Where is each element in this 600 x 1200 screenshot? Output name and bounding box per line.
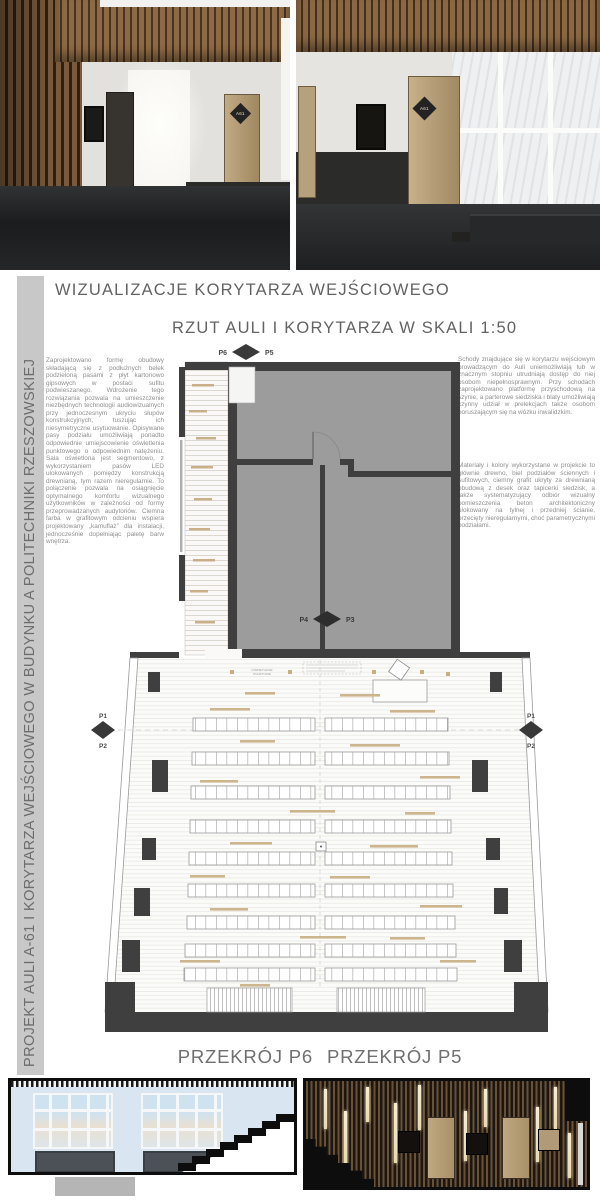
led-strip — [394, 1103, 397, 1163]
section-marker-p6-p5: P6 P5 — [218, 344, 273, 360]
marker-p2-label: P2 — [99, 743, 107, 750]
foundation-block — [55, 1177, 135, 1196]
section-headings: PRZEKRÓJ P6 PRZEKRÓJ P5 — [150, 1046, 490, 1068]
section-p5-body — [303, 1078, 590, 1190]
wardrobe — [229, 367, 255, 403]
radiator-panel — [35, 1151, 115, 1173]
heading-visualizations: WIZUALIZACJE KORYTARZA WEJŚCIOWEGO — [55, 281, 450, 300]
window-sliver — [281, 18, 290, 180]
door-number-label: A61 — [420, 106, 429, 111]
ceiling-white-band — [100, 0, 290, 7]
render-corridor-view-1: A61 — [0, 0, 290, 270]
far-door — [298, 86, 316, 198]
entrance-opening — [205, 649, 242, 659]
picture-frame — [84, 106, 104, 142]
led-strip — [418, 1085, 421, 1130]
framed-picture — [538, 1129, 560, 1151]
framed-picture — [466, 1133, 488, 1155]
render-corridor-view-2: A61 — [296, 0, 600, 270]
section-p6-body — [8, 1078, 297, 1175]
section-window — [33, 1093, 113, 1149]
lighting-annotation: OŚWIETLENIE PUNKTOWE — [251, 667, 272, 676]
front-platform-left — [207, 988, 292, 1012]
upper-corridor — [228, 362, 460, 658]
marker-p2-label: P2 — [527, 743, 535, 750]
section-marker-p1-p2-left: P1 P2 — [91, 713, 115, 750]
led-strip — [484, 1089, 487, 1127]
entrance-stairs — [179, 362, 228, 655]
framed-picture — [398, 1131, 420, 1153]
lectern — [316, 842, 326, 851]
vertical-title-bar: PROJEKT AULI A-61 I KORYTARZA WEJŚCIOWEG… — [17, 276, 44, 1075]
marker-p1-label: P1 — [99, 713, 107, 720]
dark-carpet-floor — [0, 186, 290, 270]
led-strip — [554, 1087, 557, 1129]
ceiling-dotted-band — [11, 1081, 294, 1087]
led-strip — [366, 1087, 369, 1122]
heading-section-p5: PRZEKRÓJ P5 — [327, 1046, 462, 1068]
heading-section-p6: PRZEKRÓJ P6 — [178, 1046, 313, 1068]
led-strip — [324, 1089, 327, 1129]
dark-door — [106, 92, 134, 190]
section-drawing-p5 — [303, 1078, 590, 1190]
floor-plan-drawing: P6 P5 P4 P3 — [90, 340, 560, 1045]
wall-light-strip — [578, 1123, 583, 1185]
aula-front-wall — [105, 1012, 548, 1032]
wall-notch — [565, 1081, 587, 1121]
section-door — [427, 1117, 455, 1179]
door-number-label: A61 — [236, 111, 245, 116]
picture-frame — [356, 104, 386, 150]
radiator — [470, 214, 600, 242]
project-title-vertical: PROJEKT AULI A-61 I KORYTARZA WEJŚCIOWEG… — [17, 276, 44, 1067]
presenter-desk — [373, 680, 427, 702]
marker-p6-label: P6 — [218, 350, 227, 357]
door-a61 — [408, 76, 460, 206]
section-drawing-p6 — [8, 1078, 297, 1196]
svg-text:PUNKTOWE: PUNKTOWE — [253, 672, 271, 676]
wood-slat-ceiling — [296, 0, 600, 52]
section-door — [502, 1117, 530, 1179]
front-platform-right — [337, 988, 425, 1012]
stair-step — [178, 1163, 196, 1171]
marker-p5-label: P5 — [265, 350, 274, 357]
floor-plan: P6 P5 P4 P3 — [90, 340, 560, 1045]
section-window — [141, 1093, 223, 1149]
marker-p4-label: P4 — [299, 617, 308, 624]
led-strip — [344, 1111, 347, 1166]
heading-plan: RZUT AULI I KORYTARZA W SKALI 1:50 — [172, 319, 517, 338]
wood-slat-ceiling — [55, 0, 290, 62]
marker-p1-label: P1 — [527, 713, 535, 720]
led-strip — [568, 1133, 571, 1178]
marker-p3-label: P3 — [346, 617, 355, 624]
window-mullion — [452, 128, 600, 133]
